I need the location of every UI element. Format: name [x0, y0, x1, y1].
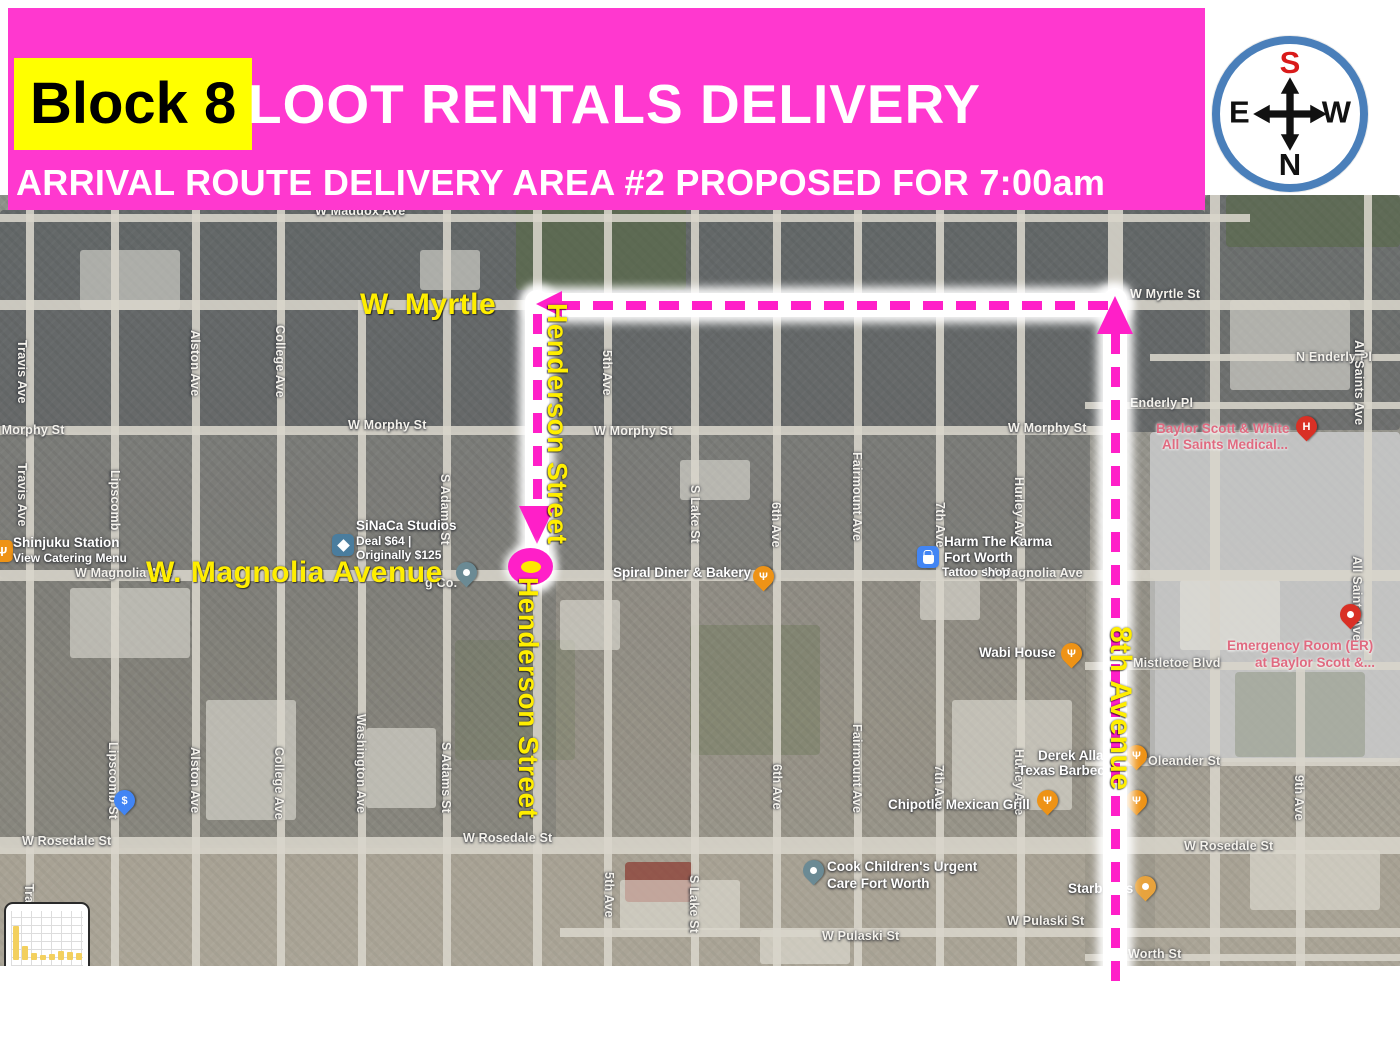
poi-chipotle-icon: Ψ [1033, 786, 1063, 816]
building-roof [366, 728, 436, 808]
banner-subtitle: ARRIVAL ROUTE DELIVERY AREA #2 PROPOSED … [16, 162, 1105, 204]
street-line [358, 300, 366, 966]
poi-restaurant-pin-icon: Ψ [1122, 786, 1152, 816]
street-label-enderly-pl: Enderly Pl [1130, 396, 1193, 410]
thumbnail-bar [22, 946, 28, 960]
poi-sinaca-studios-label: Originally $125 [356, 548, 441, 562]
thumbnail-bar [67, 952, 73, 960]
banner-title: LOOT RENTALS DELIVERY [248, 72, 981, 136]
poi-cook-childrens-label: Cook Children's Urgent [827, 859, 977, 874]
thumbnail-bar [49, 954, 55, 960]
street-label-travis-ave: Travis Ave [15, 340, 29, 404]
street-line [0, 214, 1250, 222]
poi-wabi-house-icon: Ψ [1057, 639, 1087, 669]
terrain-block [455, 640, 575, 760]
poi-shinjuku-station-label: View Catering Menu [13, 551, 127, 565]
poi-bank-icon: $ [110, 786, 140, 816]
building-roof [620, 880, 740, 930]
title-banner: Block 8 LOOT RENTALS DELIVERY ARRIVAL RO… [8, 8, 1205, 210]
street-line [0, 426, 1115, 435]
poi-derek-allan-texas-bbq-label: Derek Alla [1038, 748, 1104, 763]
thumbnail-bar-chart [11, 911, 83, 966]
street-label-5th-ave: 5th Ave [600, 350, 614, 396]
street-label-w-myrtle-st: W Myrtle St [1130, 287, 1200, 301]
poi-emergency-room-icon [1336, 600, 1366, 630]
poi-shinjuku-station-label: Shinjuku Station [13, 535, 120, 550]
poi-emergency-room-label: Emergency Room (ER) [1227, 638, 1373, 653]
street-label-all-saints-ave: All Saints Ave [1350, 556, 1364, 641]
poi-spiral-diner-label: Spiral Diner & Bakery [613, 565, 751, 580]
street-label-lipscomb: Lipscomb [108, 470, 122, 531]
street-label-w-morphy-st: W Morphy St [0, 423, 65, 437]
poi-baylor-scott-white-label: All Saints Medical... [1162, 437, 1288, 452]
street-label-s-lake-st: S Lake St [688, 485, 702, 543]
building-roof [1250, 850, 1380, 910]
poi-baylor-scott-white-icon: H [1292, 412, 1322, 442]
poi-advertising-co-icon [452, 558, 482, 588]
street-label-alston-ave: Alston Ave [188, 330, 202, 396]
poi-chipotle-label: Chipotle Mexican Grill [888, 797, 1030, 812]
compass-rose-icon: S N E W [1212, 36, 1368, 192]
building-roof [920, 580, 980, 620]
poi-baylor-scott-white-label: Baylor Scott & White [1156, 421, 1290, 436]
street-label-w-rosedale-st: W Rosedale St [463, 831, 552, 845]
street-label-s-adams-st: S Adams St [439, 742, 453, 813]
poi-cook-childrens-label: Care Fort Worth [827, 876, 930, 891]
poi-derek-allan-texas-bbq-icon: Ψ [1122, 741, 1152, 771]
thumbnail-bar [13, 926, 19, 960]
street-label-fairmount-ave: Fairmount Ave [850, 452, 864, 541]
street-label-travis-ave: Travis Ave [15, 463, 29, 527]
thumbnail-bar [31, 953, 37, 960]
street-line [0, 300, 1400, 310]
poi-shinjuku-station-icon: Ψ [0, 540, 13, 562]
street-label-oleander-st: Oleander St [1148, 754, 1220, 768]
street-label-w-pulaski-st: W Pulaski St [822, 929, 899, 943]
terrain-block [690, 625, 820, 755]
building-roof [70, 588, 190, 658]
street-label-alston-ave: Alston Ave [188, 747, 202, 813]
poi-cook-childrens-icon [799, 856, 829, 886]
compass-cross-arrows [1244, 68, 1336, 160]
street-label-w-morphy-st: W Morphy St [594, 424, 673, 438]
poi-sinaca-studios-label: SiNaCa Studios [356, 518, 457, 533]
street-label-w-magnolia-ave: W Magnolia Ave [75, 566, 173, 580]
street-label-w-pulaski-st: W Pulaski St [1007, 914, 1084, 928]
street-label-fairmount-ave: Fairmount Ave [850, 724, 864, 813]
building-roof [1230, 300, 1350, 390]
street-label-6th-ave: 6th Ave [770, 764, 784, 810]
poi-sinaca-studios-label: Deal $64 | [356, 534, 411, 548]
street-label-6th-ave: 6th Ave [769, 502, 783, 548]
poi-wabi-house-label: Wabi House [979, 645, 1056, 660]
street-label-s-adams-st: S Adams St [438, 474, 452, 545]
street-label-w-rosedale-st: W Rosedale St [22, 834, 111, 848]
street-line [1364, 195, 1372, 660]
terrain-block [1226, 195, 1400, 247]
street-label-w-morphy-st: W Morphy St [1008, 421, 1087, 435]
poi-starbucks-icon [1131, 872, 1161, 902]
street-label-college-ave: College Ave [272, 747, 286, 820]
poi-emergency-room-label: at Baylor Scott &... [1255, 655, 1375, 670]
street-label-g-co: g Co. [425, 576, 457, 590]
street-label-s-lake-st: S Lake St [687, 875, 701, 933]
poi-sinaca-studios-icon [332, 534, 354, 556]
poi-derek-allan-texas-bbq-label: Texas Barbec [1018, 763, 1105, 778]
thumbnail-bar [40, 955, 46, 960]
street-label-mistletoe-blvd: Mistletoe Blvd [1133, 656, 1221, 670]
poi-harm-the-karma-icon [917, 546, 939, 568]
poi-harm-the-karma-label: Harm The Karma [944, 534, 1052, 549]
street-label-9th-ave: 9th Ave [1292, 775, 1306, 821]
block-number-highlight: Block 8 [14, 58, 252, 150]
street-label-5th-ave: 5th Ave [602, 872, 616, 918]
poi-harm-the-karma-label: Tattoo shop [942, 565, 1010, 579]
street-label-college-ave: College Ave [273, 325, 287, 398]
poi-spiral-diner-icon: Ψ [749, 562, 779, 592]
street-label-all-saints-ave: All Saints Ave [1352, 340, 1366, 425]
street-label-w-morphy-st: W Morphy St [348, 418, 427, 432]
satellite-map: W Maddox AveW Myrtle StN Enderly PlEnder… [0, 195, 1400, 966]
thumbnail-bar [58, 951, 64, 960]
chart-thumbnail [4, 902, 90, 966]
poi-starbucks-label: Starbucks [1068, 881, 1133, 896]
street-label-w-rosedale-st: W Rosedale St [1184, 839, 1273, 853]
thumbnail-bar [76, 953, 82, 960]
street-label-worth-st: Worth St [1128, 947, 1181, 961]
poi-harm-the-karma-label: Fort Worth [944, 550, 1013, 565]
street-line [560, 928, 1400, 937]
slide: { "banner": { "block_label": "Block 8", … [0, 0, 1400, 1050]
street-label-washington-ave: Washington Ave [354, 714, 368, 813]
